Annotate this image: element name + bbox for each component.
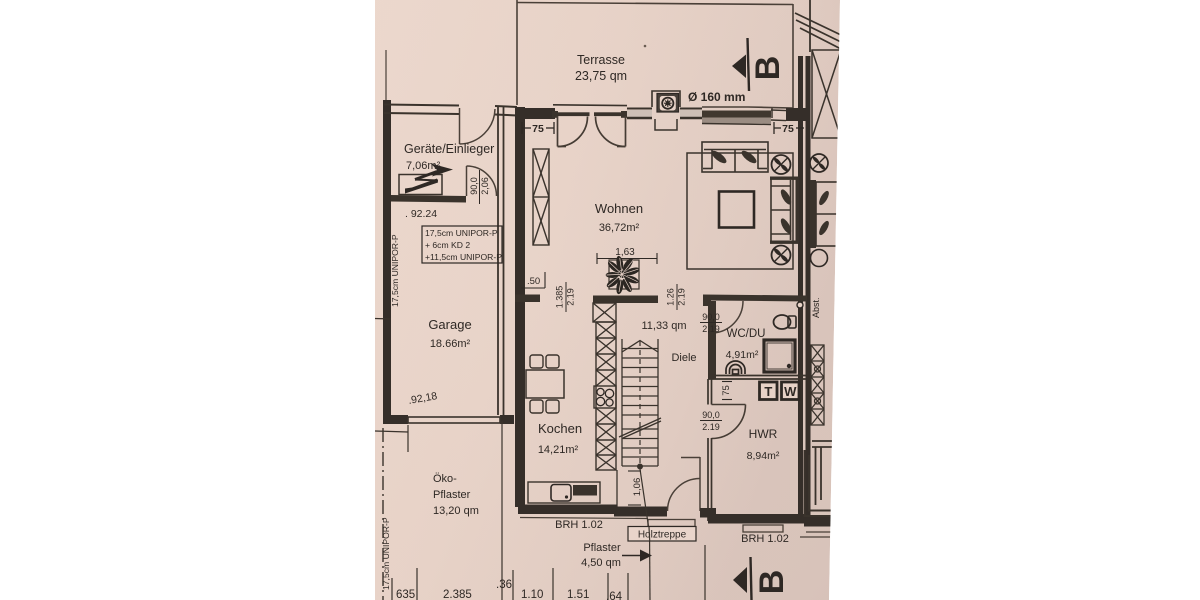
svg-text:1,06: 1,06 [632,478,643,497]
svg-text:. 92.24: . 92.24 [405,208,437,220]
svg-text:Geräte/Einlieger: Geräte/Einlieger [404,142,494,156]
svg-text:B: B [749,56,787,81]
svg-text:17,5cm UNIPOR-P: 17,5cm UNIPOR-P [390,234,400,307]
svg-text:BRH 1.02: BRH 1.02 [741,533,789,545]
svg-text:.64: .64 [606,591,623,600]
svg-text:635: 635 [396,589,415,600]
svg-text:90,0: 90,0 [702,312,720,322]
svg-text:75: 75 [532,123,544,135]
svg-text:1.26: 1.26 [666,288,676,306]
svg-text:BRH 1.02: BRH 1.02 [555,519,603,531]
svg-text:Ø 160 mm: Ø 160 mm [688,90,745,104]
svg-text:Terrasse: Terrasse [577,53,625,67]
svg-text:2.19: 2.19 [566,288,576,306]
svg-text:11,33 qm: 11,33 qm [641,320,686,332]
svg-text:+11,5cm UNIPOR-P: +11,5cm UNIPOR-P [425,252,502,262]
svg-text:90,0: 90,0 [702,410,720,420]
svg-text:Kochen: Kochen [538,421,582,436]
svg-text:8,94m²: 8,94m² [747,450,780,462]
svg-text:Abst.: Abst. [811,297,821,318]
svg-text:Pflaster: Pflaster [583,542,621,554]
svg-text:T: T [764,384,772,399]
svg-text:Pflaster: Pflaster [433,489,471,501]
svg-text:.36: .36 [496,579,512,591]
svg-text:Diele: Diele [671,352,696,364]
svg-text:2.19: 2.19 [677,288,687,306]
svg-text:Öko-: Öko- [433,473,457,485]
svg-text:2,19: 2,19 [702,324,720,334]
svg-text:75: 75 [721,385,732,396]
svg-text:2.19: 2.19 [702,422,720,432]
svg-text:Garage: Garage [428,317,471,332]
svg-text:17,5cm UNIPOR-P: 17,5cm UNIPOR-P [425,228,498,238]
svg-text:23,75 qm: 23,75 qm [575,69,627,83]
svg-text:WC/DU: WC/DU [727,328,766,340]
svg-text:Wohnen: Wohnen [595,201,643,216]
svg-text:W: W [784,384,797,399]
svg-text:4,91m²: 4,91m² [726,349,759,361]
svg-text:B: B [753,570,791,595]
svg-text:90,0: 90,0 [469,177,479,195]
svg-text:75: 75 [782,123,794,135]
svg-text:1.385: 1.385 [555,286,565,309]
svg-text:HWR: HWR [749,427,778,441]
svg-text:1.10: 1.10 [521,589,543,600]
svg-text:Holztreppe: Holztreppe [638,530,687,541]
svg-text:13,20 qm: 13,20 qm [433,505,479,517]
svg-text:4,50 qm: 4,50 qm [581,557,621,569]
svg-text:2,06: 2,06 [480,177,490,195]
svg-text:18.66m²: 18.66m² [430,338,471,350]
svg-text:1.51: 1.51 [567,589,589,600]
svg-text:.50: .50 [527,276,540,287]
svg-text:2.385: 2.385 [443,589,472,600]
svg-text:+ 6cm KD 2: + 6cm KD 2 [425,240,470,250]
svg-text:14,21m²: 14,21m² [538,444,579,456]
svg-text:36,72m²: 36,72m² [599,222,640,234]
